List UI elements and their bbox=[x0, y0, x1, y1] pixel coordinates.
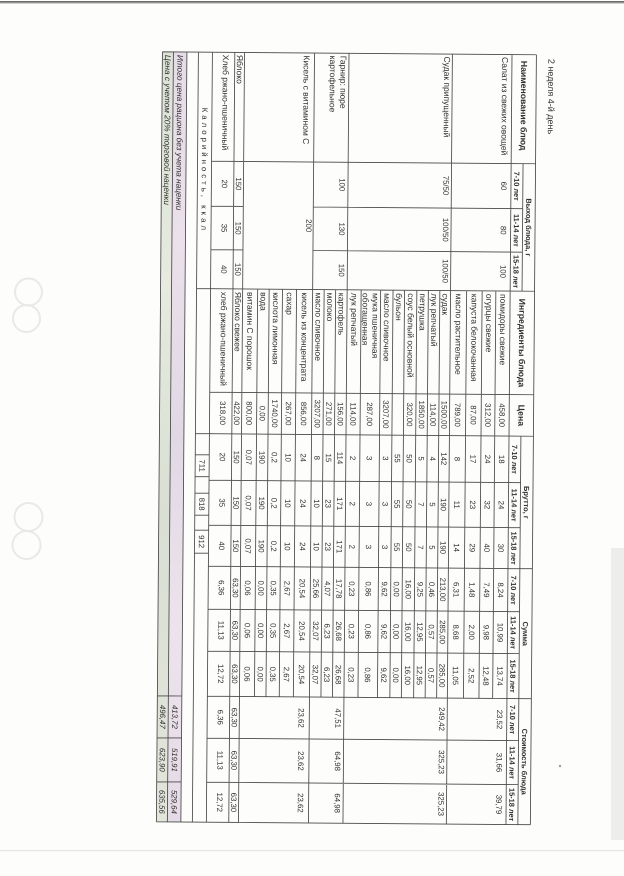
svg-text:0,07: 0,07 bbox=[244, 495, 253, 510]
svg-text:25,66: 25,66 bbox=[311, 579, 320, 599]
svg-text:80: 80 bbox=[499, 226, 508, 235]
svg-text:15-18 лет: 15-18 лет bbox=[509, 531, 518, 565]
svg-text:32,07: 32,07 bbox=[311, 665, 320, 685]
svg-text:35: 35 bbox=[219, 224, 228, 233]
svg-text:12,48: 12,48 bbox=[481, 666, 490, 686]
svg-text:114: 114 bbox=[335, 452, 344, 465]
svg-text:8,68: 8,68 bbox=[451, 625, 460, 640]
svg-text:623,90: 623,90 bbox=[158, 748, 167, 773]
svg-text:Выход блюда, г: Выход блюда, г bbox=[524, 198, 533, 256]
svg-text:4,07: 4,07 bbox=[323, 581, 332, 596]
svg-text:60: 60 bbox=[499, 182, 508, 191]
svg-text:8: 8 bbox=[453, 457, 462, 461]
svg-text:17: 17 bbox=[468, 455, 477, 464]
svg-text:2: 2 bbox=[348, 502, 357, 506]
svg-text:0,23: 0,23 bbox=[346, 667, 355, 682]
svg-text:156,00: 156,00 bbox=[336, 402, 345, 427]
svg-text:Итого цена рациона без учета н: Итого цена рациона без учета наценки bbox=[174, 55, 184, 211]
svg-text:0,2: 0,2 bbox=[269, 541, 278, 552]
svg-text:11,13: 11,13 bbox=[215, 751, 224, 770]
svg-text:26,68: 26,68 bbox=[334, 621, 343, 641]
svg-text:200: 200 bbox=[304, 219, 313, 233]
svg-text:1500,00: 1500,00 bbox=[439, 401, 448, 430]
svg-text:190: 190 bbox=[257, 540, 266, 554]
svg-text:Ингредиенты блюда: Ингредиенты блюда bbox=[517, 299, 528, 388]
svg-text:0,07: 0,07 bbox=[243, 538, 252, 553]
svg-text:0,57: 0,57 bbox=[427, 624, 436, 639]
svg-text:7-10 лет: 7-10 лет bbox=[509, 576, 518, 606]
svg-text:0,06: 0,06 bbox=[243, 580, 252, 595]
svg-text:150: 150 bbox=[231, 496, 240, 510]
svg-text:1,48: 1,48 bbox=[467, 582, 476, 597]
svg-text:мука пшеничная: мука пшеничная bbox=[370, 293, 381, 359]
svg-text:0,2: 0,2 bbox=[269, 498, 278, 509]
svg-text:0,00: 0,00 bbox=[256, 580, 265, 596]
svg-text:7-10 лет: 7-10 лет bbox=[508, 705, 517, 735]
svg-text:496,47: 496,47 bbox=[158, 705, 167, 730]
svg-text:32: 32 bbox=[483, 501, 492, 510]
svg-text:150: 150 bbox=[234, 177, 243, 191]
svg-text:413,72: 413,72 bbox=[170, 705, 179, 730]
svg-text:287,00: 287,00 bbox=[365, 402, 374, 427]
svg-text:4: 4 bbox=[428, 456, 437, 461]
svg-text:458,00: 458,00 bbox=[497, 403, 506, 428]
svg-text:Цена с учетом 20% торговой нац: Цена с учетом 20% торговой наценки bbox=[162, 55, 172, 206]
svg-text:8,24: 8,24 bbox=[496, 582, 505, 598]
svg-text:100/50: 100/50 bbox=[441, 218, 450, 243]
svg-text:285,00: 285,00 bbox=[438, 620, 447, 645]
svg-text:0,35: 0,35 bbox=[269, 581, 278, 597]
svg-text:9,98: 9,98 bbox=[482, 625, 491, 640]
svg-text:6,31: 6,31 bbox=[451, 582, 460, 597]
svg-text:150: 150 bbox=[233, 222, 242, 236]
svg-text:40: 40 bbox=[219, 265, 228, 274]
svg-text:2 неделя 4-й день: 2 неделя 4-й день bbox=[546, 59, 557, 135]
svg-text:711: 711 bbox=[197, 459, 206, 472]
svg-text:бульон: бульон bbox=[394, 293, 404, 321]
svg-text:петрушка: петрушка bbox=[418, 293, 428, 331]
svg-text:кисель из концентрата: кисель из концентрата bbox=[299, 292, 310, 381]
svg-text:16,00: 16,00 bbox=[403, 665, 412, 685]
svg-text:23: 23 bbox=[323, 499, 332, 508]
svg-text:26,68: 26,68 bbox=[334, 665, 343, 685]
svg-text:0,86: 0,86 bbox=[363, 667, 372, 682]
svg-text:20,54: 20,54 bbox=[297, 621, 306, 641]
svg-text:молоко: молоко bbox=[325, 293, 335, 322]
svg-text:2: 2 bbox=[348, 456, 357, 460]
svg-text:50: 50 bbox=[404, 543, 413, 552]
svg-text:10: 10 bbox=[283, 453, 292, 462]
svg-text:23,52: 23,52 bbox=[495, 710, 504, 730]
svg-text:3: 3 bbox=[365, 456, 374, 460]
svg-text:Хлеб ржано-пшеничный: Хлеб ржано-пшеничный bbox=[220, 55, 231, 151]
svg-text:150: 150 bbox=[231, 539, 240, 553]
svg-text:Кисель с витамином С: Кисель с витамином С bbox=[301, 55, 312, 144]
svg-text:31,66: 31,66 bbox=[494, 753, 503, 773]
svg-text:16,00: 16,00 bbox=[403, 622, 412, 642]
svg-text:3: 3 bbox=[364, 545, 373, 549]
svg-text:11,05: 11,05 bbox=[451, 666, 460, 686]
svg-text:6,23: 6,23 bbox=[322, 623, 331, 638]
svg-text:5: 5 bbox=[428, 502, 437, 507]
svg-text:15: 15 bbox=[324, 454, 333, 463]
svg-text:лук репчатый: лук репчатый bbox=[429, 293, 439, 346]
svg-text:856,00: 856,00 bbox=[299, 402, 308, 427]
svg-text:0,07: 0,07 bbox=[244, 450, 253, 465]
svg-text:23,62: 23,62 bbox=[296, 793, 305, 813]
svg-text:0,00: 0,00 bbox=[256, 623, 265, 639]
svg-text:63,30: 63,30 bbox=[230, 708, 239, 728]
svg-text:142: 142 bbox=[439, 452, 448, 465]
svg-text:9,62: 9,62 bbox=[379, 624, 388, 639]
svg-text:23,62: 23,62 bbox=[296, 708, 305, 728]
svg-text:Калорийность, ккал: Калорийность, ккал bbox=[199, 108, 209, 233]
svg-text:Сумма: Сумма bbox=[521, 621, 530, 646]
svg-text:лук репчатый: лук репчатый bbox=[349, 293, 359, 346]
svg-text:130: 130 bbox=[337, 222, 346, 236]
svg-text:23: 23 bbox=[468, 500, 477, 509]
svg-text:вода: вода bbox=[259, 292, 269, 311]
svg-text:15-18 лет: 15-18 лет bbox=[507, 788, 516, 822]
svg-text:150: 150 bbox=[232, 451, 241, 465]
svg-text:2,67: 2,67 bbox=[282, 667, 291, 682]
svg-text:23: 23 bbox=[323, 542, 332, 551]
svg-text:63,30: 63,30 bbox=[230, 621, 239, 641]
svg-text:64,98: 64,98 bbox=[333, 751, 342, 771]
svg-text:3207,00: 3207,00 bbox=[313, 400, 322, 429]
svg-text:100: 100 bbox=[337, 178, 346, 192]
svg-text:87,00: 87,00 bbox=[469, 405, 478, 425]
svg-text:190: 190 bbox=[439, 498, 448, 512]
svg-text:20: 20 bbox=[220, 179, 229, 188]
svg-text:3: 3 bbox=[381, 456, 390, 460]
svg-text:114,00: 114,00 bbox=[348, 402, 357, 426]
svg-text:9,62: 9,62 bbox=[379, 667, 388, 682]
svg-text:63,30: 63,30 bbox=[231, 578, 240, 598]
svg-text:2,52: 2,52 bbox=[467, 668, 476, 683]
svg-text:судак: судак bbox=[440, 294, 450, 316]
svg-text:2,67: 2,67 bbox=[282, 581, 291, 596]
svg-text:огурцы свежие: огурцы свежие bbox=[484, 294, 494, 353]
svg-text:1850,00: 1850,00 bbox=[417, 400, 426, 429]
svg-text:14: 14 bbox=[452, 543, 461, 552]
svg-text:18: 18 bbox=[497, 455, 506, 464]
svg-text:Стоимость блюда: Стоимость блюда bbox=[520, 729, 530, 796]
svg-text:50: 50 bbox=[405, 454, 414, 463]
svg-text:11: 11 bbox=[452, 501, 461, 509]
svg-text:29: 29 bbox=[468, 543, 477, 552]
svg-text:325,23: 325,23 bbox=[436, 792, 445, 816]
svg-text:7: 7 bbox=[416, 502, 425, 506]
svg-text:32,07: 32,07 bbox=[311, 621, 320, 641]
svg-text:75/50: 75/50 bbox=[441, 176, 450, 196]
svg-text:171: 171 bbox=[335, 540, 344, 553]
svg-text:помидоры свежие: помидоры свежие bbox=[498, 294, 509, 366]
svg-text:16,00: 16,00 bbox=[404, 579, 413, 599]
svg-text:12,72: 12,72 bbox=[215, 792, 224, 812]
svg-text:30: 30 bbox=[496, 544, 505, 553]
svg-text:320,00: 320,00 bbox=[405, 403, 414, 428]
svg-text:39,79: 39,79 bbox=[494, 795, 503, 815]
svg-text:11-14 лет: 11-14 лет bbox=[507, 746, 516, 779]
svg-text:масло сливочное: масло сливочное bbox=[313, 293, 324, 362]
svg-text:312,00: 312,00 bbox=[483, 403, 492, 428]
svg-text:55: 55 bbox=[392, 500, 401, 509]
svg-text:2,67: 2,67 bbox=[282, 623, 291, 638]
svg-text:40: 40 bbox=[217, 541, 226, 550]
svg-text:7-10 лет: 7-10 лет bbox=[512, 172, 521, 202]
svg-text:1740,00: 1740,00 bbox=[270, 399, 279, 428]
svg-text:0,00: 0,00 bbox=[258, 406, 267, 422]
svg-text:12,95: 12,95 bbox=[415, 622, 424, 642]
svg-text:масло растительное: масло растительное bbox=[453, 294, 464, 375]
svg-text:47,51: 47,51 bbox=[333, 708, 342, 728]
svg-text:63,30: 63,30 bbox=[229, 793, 238, 813]
svg-text:3: 3 bbox=[364, 502, 373, 506]
svg-text:249,42: 249,42 bbox=[437, 707, 446, 731]
svg-text:24: 24 bbox=[299, 453, 308, 462]
svg-text:хлеб ржано-пшеничный: хлеб ржано-пшеничный bbox=[218, 292, 229, 386]
svg-text:912: 912 bbox=[197, 535, 206, 548]
svg-text:9,62: 9,62 bbox=[380, 581, 389, 596]
svg-text:13,74: 13,74 bbox=[495, 666, 504, 686]
svg-text:7: 7 bbox=[416, 545, 425, 549]
svg-text:40: 40 bbox=[482, 543, 491, 552]
svg-text:789,00: 789,00 bbox=[453, 403, 462, 428]
svg-text:0,57: 0,57 bbox=[426, 668, 435, 683]
svg-text:17,78: 17,78 bbox=[334, 579, 343, 599]
svg-text:6,23: 6,23 bbox=[322, 667, 331, 682]
svg-text:11-14 лет: 11-14 лет bbox=[512, 214, 521, 247]
svg-text:0,86: 0,86 bbox=[363, 624, 372, 639]
svg-text:24: 24 bbox=[298, 542, 307, 551]
svg-text:обогащенная: обогащенная bbox=[360, 293, 370, 346]
svg-text:Яблоко: Яблоко bbox=[235, 55, 245, 84]
svg-text:0,00: 0,00 bbox=[392, 582, 401, 598]
svg-text:0,06: 0,06 bbox=[242, 666, 251, 681]
svg-text:0,86: 0,86 bbox=[363, 581, 372, 596]
svg-text:100/50: 100/50 bbox=[441, 259, 450, 284]
svg-text:10: 10 bbox=[283, 542, 292, 551]
svg-text:Цена: Цена bbox=[516, 405, 526, 427]
svg-text:10,99: 10,99 bbox=[496, 623, 505, 643]
svg-text:23,62: 23,62 bbox=[296, 751, 305, 771]
svg-text:285,00: 285,00 bbox=[437, 664, 446, 689]
svg-text:5: 5 bbox=[427, 545, 436, 550]
svg-text:63,30: 63,30 bbox=[230, 664, 239, 684]
svg-text:10: 10 bbox=[312, 542, 321, 551]
svg-text:150: 150 bbox=[337, 264, 346, 278]
svg-text:Брутто, г: Брутто, г bbox=[522, 486, 531, 519]
svg-text:картофельное: картофельное bbox=[328, 56, 338, 113]
svg-text:171: 171 bbox=[335, 497, 344, 510]
svg-text:150: 150 bbox=[233, 263, 242, 277]
svg-text:3207,00: 3207,00 bbox=[381, 400, 390, 429]
svg-text:635,56: 635,56 bbox=[157, 790, 166, 815]
svg-text:35: 35 bbox=[217, 498, 226, 507]
svg-text:100: 100 bbox=[498, 265, 507, 279]
svg-text:800,00: 800,00 bbox=[244, 401, 253, 426]
svg-text:20: 20 bbox=[218, 453, 227, 462]
svg-text:422,00: 422,00 bbox=[232, 401, 241, 426]
svg-text:11-14 лет: 11-14 лет bbox=[509, 489, 518, 522]
svg-text:0,35: 0,35 bbox=[268, 623, 277, 639]
svg-text:2: 2 bbox=[347, 545, 356, 549]
svg-text:капуста белокочанная: капуста белокочанная bbox=[469, 294, 480, 382]
svg-text:519,91: 519,91 bbox=[170, 748, 179, 772]
svg-text:5: 5 bbox=[417, 456, 426, 461]
svg-text:55: 55 bbox=[392, 543, 401, 552]
svg-text:сахар: сахар bbox=[285, 292, 295, 315]
svg-text:50: 50 bbox=[404, 500, 413, 509]
svg-text:9,25: 9,25 bbox=[415, 582, 424, 598]
svg-text:3: 3 bbox=[380, 545, 389, 549]
svg-text:818: 818 bbox=[197, 498, 206, 511]
svg-text:картофель: картофель bbox=[336, 293, 346, 336]
svg-text:267,00: 267,00 bbox=[284, 402, 293, 427]
svg-text:2,00: 2,00 bbox=[467, 625, 476, 641]
svg-text:7-10 лет: 7-10 лет bbox=[510, 445, 519, 475]
svg-text:12,95: 12,95 bbox=[415, 666, 424, 686]
svg-text:15-18 лет: 15-18 лет bbox=[508, 659, 517, 693]
svg-text:20,54: 20,54 bbox=[297, 665, 306, 685]
svg-text:24: 24 bbox=[483, 455, 492, 464]
svg-text:0,23: 0,23 bbox=[347, 581, 356, 596]
svg-text:529,64: 529,64 bbox=[169, 790, 178, 815]
svg-text:12,72: 12,72 bbox=[216, 664, 225, 684]
svg-text:6,36: 6,36 bbox=[217, 580, 226, 595]
svg-text:0,2: 0,2 bbox=[270, 452, 279, 463]
svg-text:64,98: 64,98 bbox=[333, 793, 342, 813]
svg-text:8: 8 bbox=[312, 456, 321, 460]
svg-text:Гарнир: пюре: Гарнир: пюре bbox=[338, 56, 348, 109]
svg-text:11,13: 11,13 bbox=[216, 621, 225, 640]
svg-text:24: 24 bbox=[298, 499, 307, 508]
svg-text:7,49: 7,49 bbox=[482, 582, 491, 597]
svg-text:24: 24 bbox=[497, 501, 506, 510]
svg-text:20,54: 20,54 bbox=[297, 579, 306, 599]
svg-text:114,00: 114,00 bbox=[428, 403, 437, 427]
svg-text:10: 10 bbox=[312, 499, 321, 508]
svg-text:271,00: 271,00 bbox=[324, 402, 333, 427]
svg-text:55: 55 bbox=[393, 454, 402, 463]
svg-text:витамин С порошок: витамин С порошок bbox=[245, 292, 256, 370]
svg-text:325,23: 325,23 bbox=[437, 750, 446, 774]
svg-text:0,35: 0,35 bbox=[268, 667, 277, 683]
svg-text:213,00: 213,00 bbox=[438, 578, 447, 603]
svg-text:0,00: 0,00 bbox=[391, 668, 400, 684]
svg-text:11-14 лет: 11-14 лет bbox=[508, 616, 517, 649]
svg-text:0,00: 0,00 bbox=[256, 666, 265, 682]
svg-text:кислота лимонная: кислота лимонная bbox=[270, 292, 281, 365]
svg-text:Судак припущенный: Судак припущенный bbox=[442, 57, 453, 138]
svg-text:63,30: 63,30 bbox=[229, 751, 238, 771]
svg-text:190: 190 bbox=[257, 451, 266, 465]
svg-text:0,23: 0,23 bbox=[347, 624, 356, 639]
svg-text:318,00: 318,00 bbox=[218, 401, 227, 426]
svg-text:масло сливочное: масло сливочное bbox=[382, 293, 393, 362]
svg-text:6,36: 6,36 bbox=[216, 710, 225, 725]
svg-text:0,06: 0,06 bbox=[243, 623, 252, 638]
svg-text:190: 190 bbox=[438, 541, 447, 555]
svg-text:3: 3 bbox=[380, 502, 389, 506]
svg-text:соус белый основной: соус белый основной bbox=[405, 293, 416, 378]
svg-text:Наименование блюд: Наименование блюд bbox=[518, 61, 529, 151]
svg-text:15-18 лет: 15-18 лет bbox=[511, 255, 520, 289]
svg-text:10: 10 bbox=[283, 499, 292, 508]
svg-text:Салат из свежих овощей: Салат из свежих овощей bbox=[499, 57, 510, 156]
svg-text:Яблоко свежее: Яблоко свежее bbox=[233, 292, 243, 352]
svg-text:190: 190 bbox=[257, 497, 266, 511]
svg-text:0,46: 0,46 bbox=[427, 582, 436, 597]
svg-text:0,00: 0,00 bbox=[391, 624, 400, 640]
